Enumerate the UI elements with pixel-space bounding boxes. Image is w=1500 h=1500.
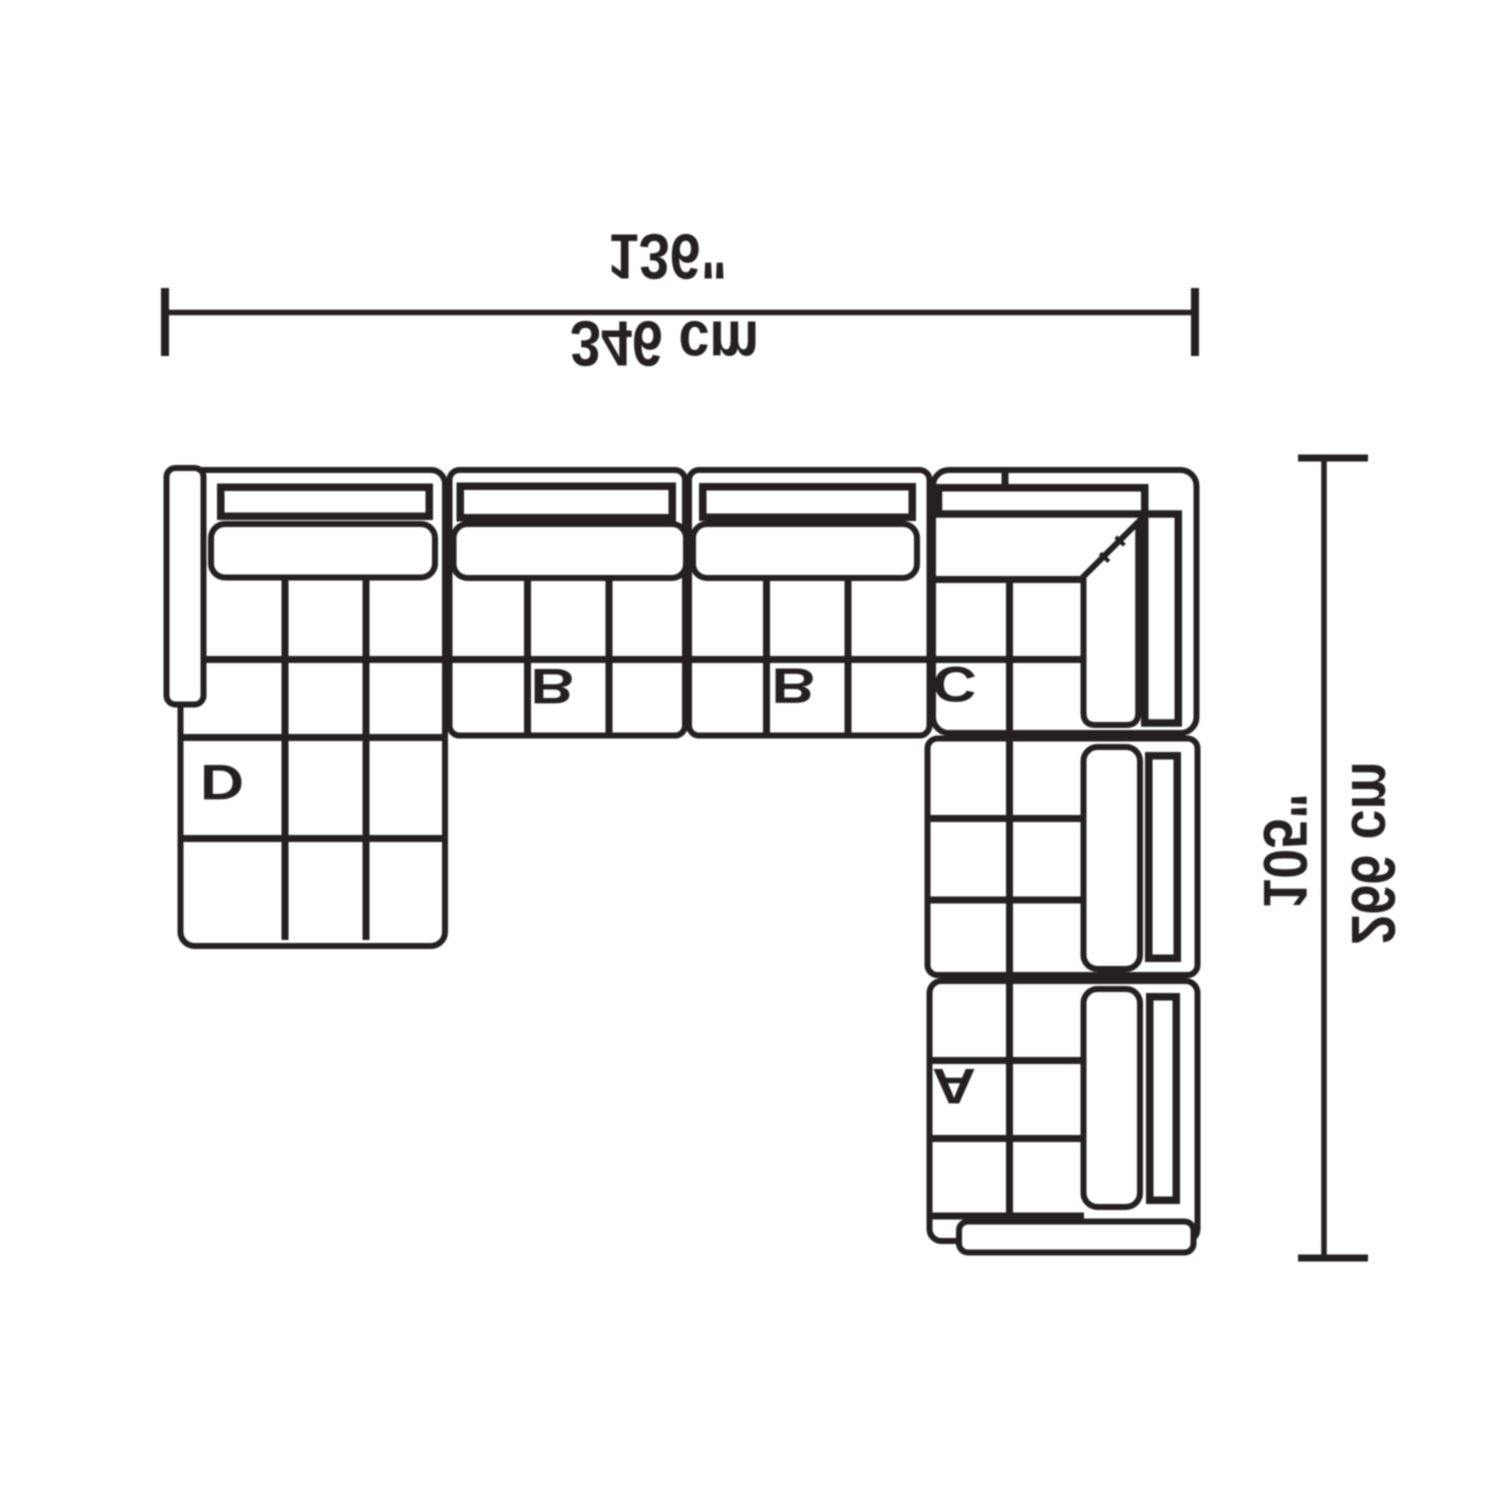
svg-text:B: B xyxy=(530,658,574,714)
svg-text:346 cm: 346 cm xyxy=(570,308,759,380)
svg-text:136": 136" xyxy=(608,221,727,293)
svg-text:266 cm: 266 cm xyxy=(1338,762,1407,945)
svg-text:105": 105" xyxy=(1250,793,1319,909)
svg-text:A: A xyxy=(932,1058,976,1114)
svg-text:C: C xyxy=(932,656,976,712)
svg-text:D: D xyxy=(200,754,244,810)
svg-text:B: B xyxy=(771,658,815,714)
